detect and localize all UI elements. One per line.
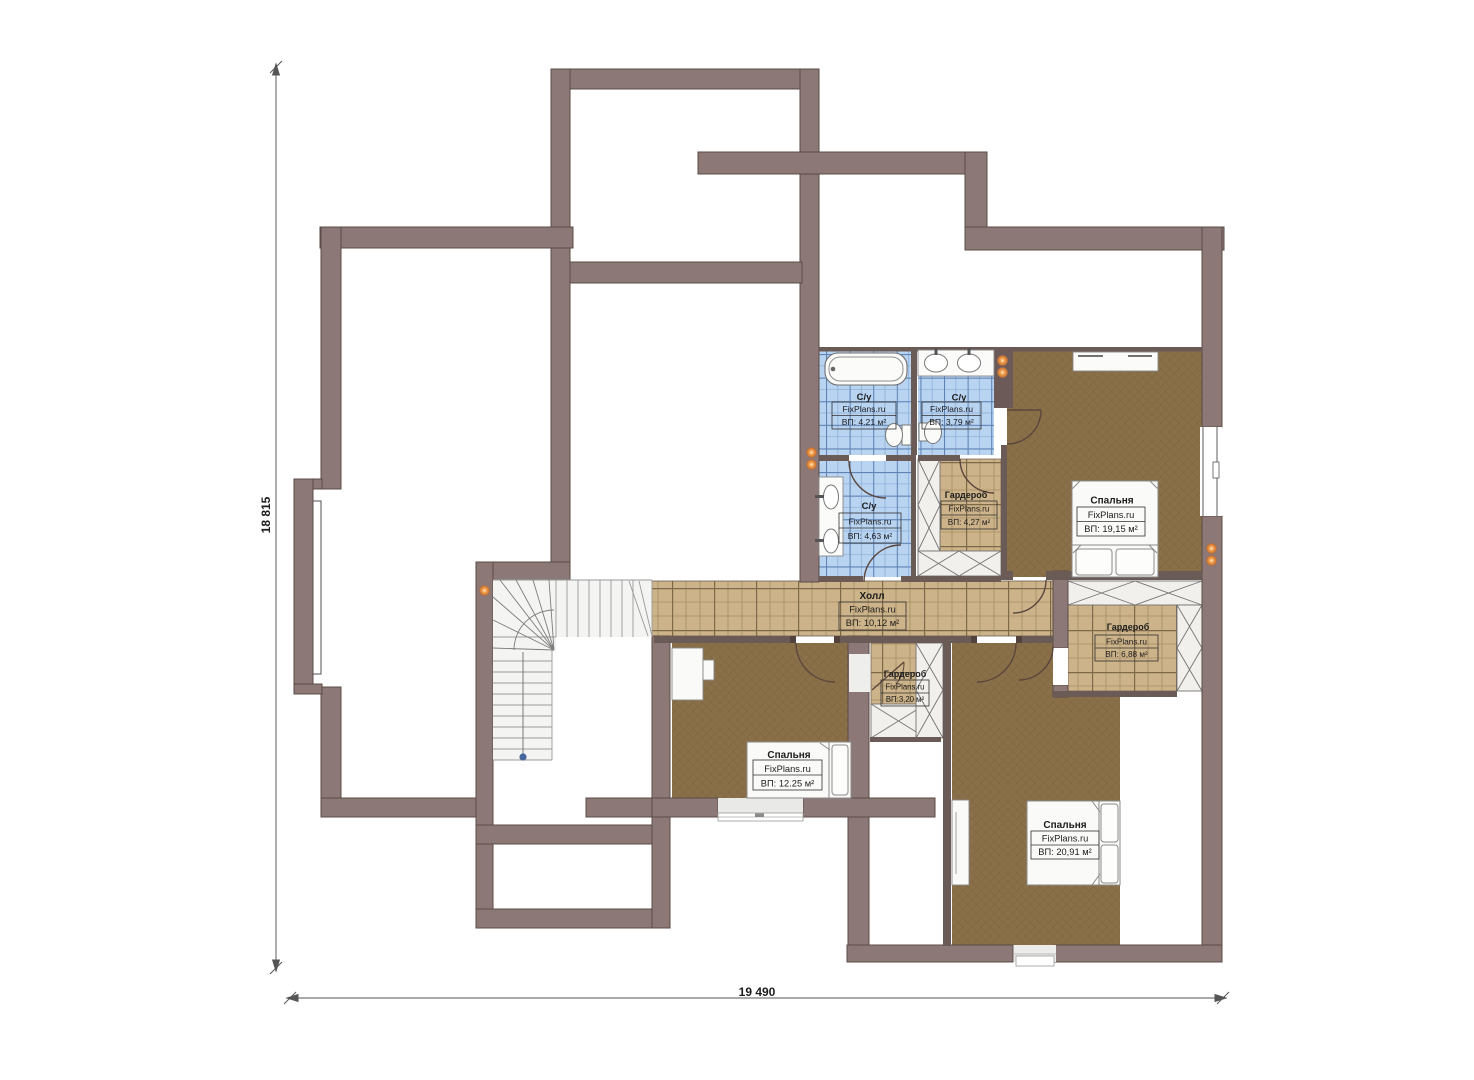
- svg-text:С/у: С/у: [862, 501, 878, 512]
- svg-text:ВП: 3,79 м²: ВП: 3,79 м²: [929, 417, 974, 427]
- svg-text:FixPlans.ru: FixPlans.ru: [886, 683, 925, 692]
- svg-text:ВП: 6,88 м²: ВП: 6,88 м²: [1105, 650, 1148, 659]
- svg-text:ВП: 4,63 м²: ВП: 4,63 м²: [848, 531, 893, 541]
- svg-text:ВП: 12.25 м²: ВП: 12.25 м²: [761, 779, 814, 789]
- svg-text:19 490: 19 490: [739, 985, 776, 999]
- svg-text:Гардероб: Гардероб: [884, 669, 927, 679]
- svg-text:ВП: 10,12 м²: ВП: 10,12 м²: [846, 618, 899, 628]
- svg-text:ВП: 20,91 м²: ВП: 20,91 м²: [1038, 847, 1091, 857]
- svg-text:FixPlans.ru: FixPlans.ru: [930, 404, 973, 414]
- svg-text:ВП:3,20 м²: ВП:3,20 м²: [886, 695, 925, 704]
- svg-text:FixPlans.ru: FixPlans.ru: [849, 605, 896, 615]
- svg-text:FixPlans.ru: FixPlans.ru: [764, 764, 811, 774]
- svg-text:ВП: 4,27 м²: ВП: 4,27 м²: [948, 518, 991, 527]
- svg-text:FixPlans.ru: FixPlans.ru: [949, 505, 990, 514]
- svg-text:ВП: 19,15 м²: ВП: 19,15 м²: [1084, 524, 1137, 534]
- svg-text:FixPlans.ru: FixPlans.ru: [843, 404, 886, 414]
- svg-text:FixPlans.ru: FixPlans.ru: [849, 517, 892, 527]
- svg-text:ВП: 4.21 м²: ВП: 4.21 м²: [842, 417, 887, 427]
- svg-text:Холл: Холл: [859, 591, 884, 602]
- svg-text:Гардероб: Гардероб: [1107, 622, 1150, 632]
- svg-text:Спальня: Спальня: [767, 750, 810, 761]
- svg-text:FixPlans.ru: FixPlans.ru: [1106, 638, 1147, 647]
- svg-text:FixPlans.ru: FixPlans.ru: [1088, 510, 1135, 520]
- svg-text:Гардероб: Гардероб: [945, 490, 988, 500]
- svg-text:18 815: 18 815: [259, 496, 273, 533]
- svg-text:С/у: С/у: [857, 392, 873, 403]
- svg-text:Спальня: Спальня: [1043, 820, 1086, 831]
- svg-text:Спальня: Спальня: [1090, 496, 1133, 507]
- svg-text:FixPlans.ru: FixPlans.ru: [1042, 834, 1089, 844]
